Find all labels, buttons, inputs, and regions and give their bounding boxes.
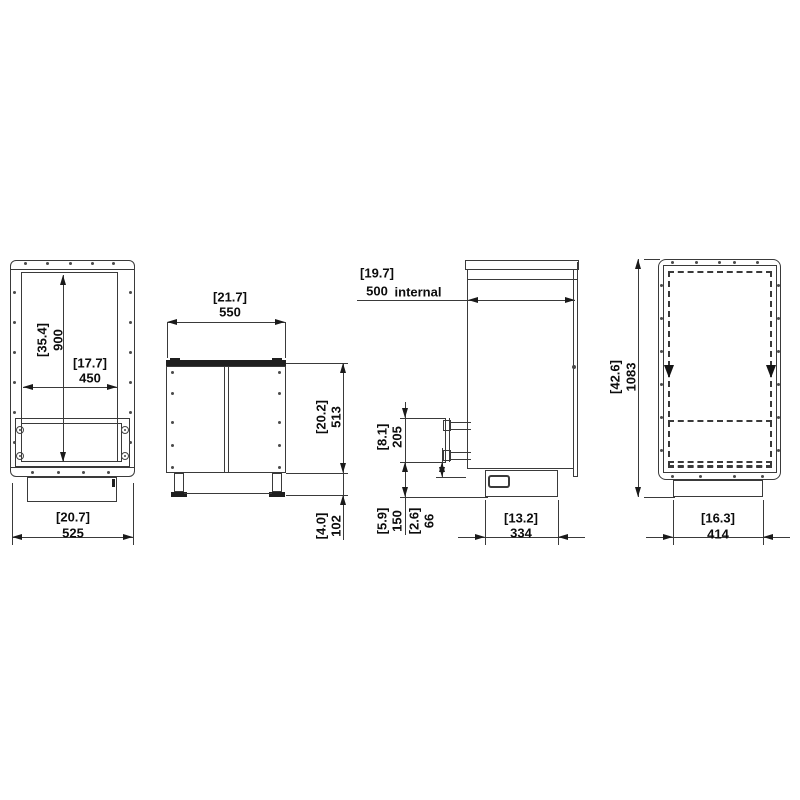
ext-line	[133, 483, 134, 545]
rear-base	[673, 480, 763, 497]
base-line	[184, 493, 272, 494]
dim-side-depth-inches: [19.7]	[360, 267, 394, 280]
screw-dot	[278, 444, 281, 447]
arrow-right-icon	[107, 384, 117, 390]
screw-dot	[777, 449, 780, 452]
side-lid	[465, 260, 579, 270]
screw-dot	[278, 466, 281, 469]
rear-dashed-shelf-line	[668, 420, 772, 422]
side-door-bottom	[573, 476, 578, 477]
screw-dot	[31, 471, 34, 474]
dim-front-height-mm: 900	[52, 329, 65, 351]
dim-side-connector-mm: 66	[423, 514, 436, 528]
dim-side-pipeheight-inches: [5.9]	[376, 508, 389, 535]
corner-screw-icon	[16, 426, 24, 434]
arrow-left-icon	[167, 319, 177, 325]
screw-dot	[660, 383, 663, 386]
screw-dot	[13, 381, 16, 384]
arrow-left-icon	[12, 534, 22, 540]
dim-doors-width-mm: 550	[219, 306, 241, 319]
screw-center-dot	[19, 455, 21, 457]
screw-dot	[756, 261, 759, 264]
arrow-left-icon	[558, 534, 568, 540]
screw-dot	[777, 284, 780, 287]
dim-doors-plinth-inches: [4.0]	[315, 513, 328, 540]
door-handle-dot	[572, 365, 576, 369]
pipe-lower-flange	[443, 450, 451, 461]
front-lower-panel-inner	[21, 423, 122, 462]
door-center-line	[224, 366, 225, 473]
front-top-rail-line	[10, 269, 135, 270]
screw-dot	[82, 471, 85, 474]
dim-rear-height-mm: 1083	[625, 363, 638, 392]
side-connector	[488, 475, 510, 488]
rear-dashed-line	[668, 461, 772, 463]
arrow-right-icon	[663, 534, 673, 540]
screw-dot	[718, 261, 721, 264]
screw-dot	[13, 321, 16, 324]
hinge-mark-right	[766, 365, 776, 378]
arrow-right-icon	[123, 534, 133, 540]
screw-dot	[171, 421, 174, 424]
ext-line	[644, 259, 660, 260]
dim-doors-bodyheight-inches: [20.2]	[315, 400, 328, 434]
screw-dot	[13, 411, 16, 414]
ext-line-ground	[400, 497, 488, 498]
side-body-top-line	[467, 279, 577, 280]
ext-line	[285, 322, 286, 358]
rear-panel-dashed	[668, 271, 772, 467]
screw-dot	[91, 262, 94, 265]
dim-doors-width-inches: [21.7]	[213, 291, 247, 304]
screw-dot	[171, 371, 174, 374]
arrow-down-icon	[402, 408, 408, 418]
dim-front-doorwidth-inches: [17.7]	[73, 357, 107, 370]
corner-screw-icon	[16, 452, 24, 460]
screw-dot	[24, 262, 27, 265]
screw-dot	[171, 444, 174, 447]
arrow-up-icon	[402, 462, 408, 472]
corner-screw-icon	[121, 426, 129, 434]
side-door-edge	[573, 270, 574, 477]
dim-line-900	[63, 275, 64, 462]
front-ledge-line	[10, 467, 135, 468]
screw-dot	[13, 351, 16, 354]
screw-dot	[13, 291, 16, 294]
screw-dot	[278, 392, 281, 395]
side-left-edge	[467, 270, 468, 468]
screw-dot	[660, 317, 663, 320]
screw-dot	[671, 475, 674, 478]
screw-dot	[699, 475, 702, 478]
side-body-bottom	[467, 468, 574, 469]
pipe-lower-line	[449, 459, 471, 460]
arrow-right-icon	[275, 319, 285, 325]
leg-left	[174, 473, 184, 492]
door-center-line	[228, 366, 229, 473]
arrow-down-icon	[60, 452, 66, 462]
screw-dot	[733, 261, 736, 264]
arrow-up-icon	[635, 259, 641, 269]
screw-dot	[777, 416, 780, 419]
screw-center-dot	[19, 429, 21, 431]
ext-line	[286, 473, 348, 474]
screw-dot	[129, 441, 132, 444]
arrow-up-icon	[60, 275, 66, 285]
screw-dot	[660, 284, 663, 287]
screw-dot	[278, 421, 281, 424]
screw-dot	[13, 441, 16, 444]
dim-front-doorwidth-mm: 450	[79, 372, 101, 385]
dim-doors-bodyheight-mm: 513	[330, 406, 343, 428]
dim-line-550	[167, 322, 285, 323]
drawing-canvas: [35.4] 900 [17.7] 450 [20.7] 525 [21.7] …	[0, 0, 800, 800]
ext-line	[644, 497, 675, 498]
dim-rear-height-inches: [42.6]	[609, 360, 622, 394]
screw-dot	[129, 351, 132, 354]
dim-front-width-inches: [20.7]	[56, 511, 90, 524]
arrow-left-icon	[763, 534, 773, 540]
ext-line	[485, 500, 486, 545]
arrow-down-icon	[635, 487, 641, 497]
screw-dot	[107, 471, 110, 474]
pipe-upper-line	[449, 429, 471, 430]
screw-dot	[777, 317, 780, 320]
dim-line-500	[357, 300, 575, 301]
screw-dot	[69, 262, 72, 265]
screw-dot	[129, 381, 132, 384]
screw-dot	[671, 261, 674, 264]
rear-dashed-line	[668, 466, 772, 468]
dim-line-513-102	[343, 363, 344, 540]
dim-line-450	[23, 387, 117, 388]
dim-side-pipeheight-mm: 150	[391, 510, 404, 532]
dim-front-width-mm: 525	[62, 527, 84, 540]
screw-dot	[660, 416, 663, 419]
screw-dot	[777, 350, 780, 353]
doors-top-cap-right	[272, 358, 282, 366]
screw-dot	[112, 262, 115, 265]
screw-dot	[46, 262, 49, 265]
side-door-edge-outer	[577, 262, 578, 477]
screw-dot	[129, 411, 132, 414]
ext-line	[167, 322, 168, 358]
screw-dot	[777, 383, 780, 386]
dim-side-depth-suffix: internal	[395, 286, 442, 299]
front-base-latch	[112, 479, 115, 487]
arrow-up-icon	[340, 495, 346, 505]
screw-dot	[171, 392, 174, 395]
arrow-left-icon	[468, 297, 478, 303]
screw-center-dot	[124, 455, 126, 457]
screw-dot	[57, 471, 60, 474]
arrow-down-icon	[340, 463, 346, 473]
dim-side-basedepth-inches: [13.2]	[504, 512, 538, 525]
arrow-left-icon	[23, 384, 33, 390]
screw-dot	[733, 475, 736, 478]
dim-front-height-inches: [35.4]	[36, 323, 49, 357]
arrow-up-icon	[340, 363, 346, 373]
hinge-mark-left	[664, 365, 674, 378]
screw-dot	[660, 350, 663, 353]
dim-side-pipespan-inches: [8.1]	[376, 424, 389, 451]
pipe-upper-line	[449, 422, 471, 423]
ext-line	[436, 477, 466, 478]
screw-dot	[129, 291, 132, 294]
ext-line	[673, 500, 674, 545]
dim-rear-basewidth-mm: 414	[707, 528, 729, 541]
screw-dot	[695, 261, 698, 264]
corner-screw-icon	[121, 452, 129, 460]
screw-dot	[278, 371, 281, 374]
pipe-lower-line	[449, 452, 471, 453]
screw-dot	[171, 466, 174, 469]
screw-dot	[129, 321, 132, 324]
doors-body	[166, 366, 286, 473]
screw-dot	[660, 449, 663, 452]
screw-dot	[761, 475, 764, 478]
arrow-down-icon	[402, 487, 408, 497]
arrow-right-icon	[475, 534, 485, 540]
pipe-upper-flange	[443, 420, 451, 431]
dim-side-depth-mm: 500	[366, 285, 388, 298]
dim-rear-basewidth-inches: [16.3]	[701, 512, 735, 525]
dim-side-pipespan-mm: 205	[391, 426, 404, 448]
dim-side-connector-inches: [2.6]	[408, 508, 421, 535]
dim-side-basedepth-mm: 334	[510, 527, 532, 540]
front-base	[27, 477, 117, 502]
ext-line	[400, 418, 446, 419]
arrow-down-icon	[439, 467, 445, 477]
dim-doors-plinth-mm: 102	[330, 515, 343, 537]
doors-top-cap-left	[170, 358, 180, 366]
screw-center-dot	[124, 429, 126, 431]
leg-right	[272, 473, 282, 492]
